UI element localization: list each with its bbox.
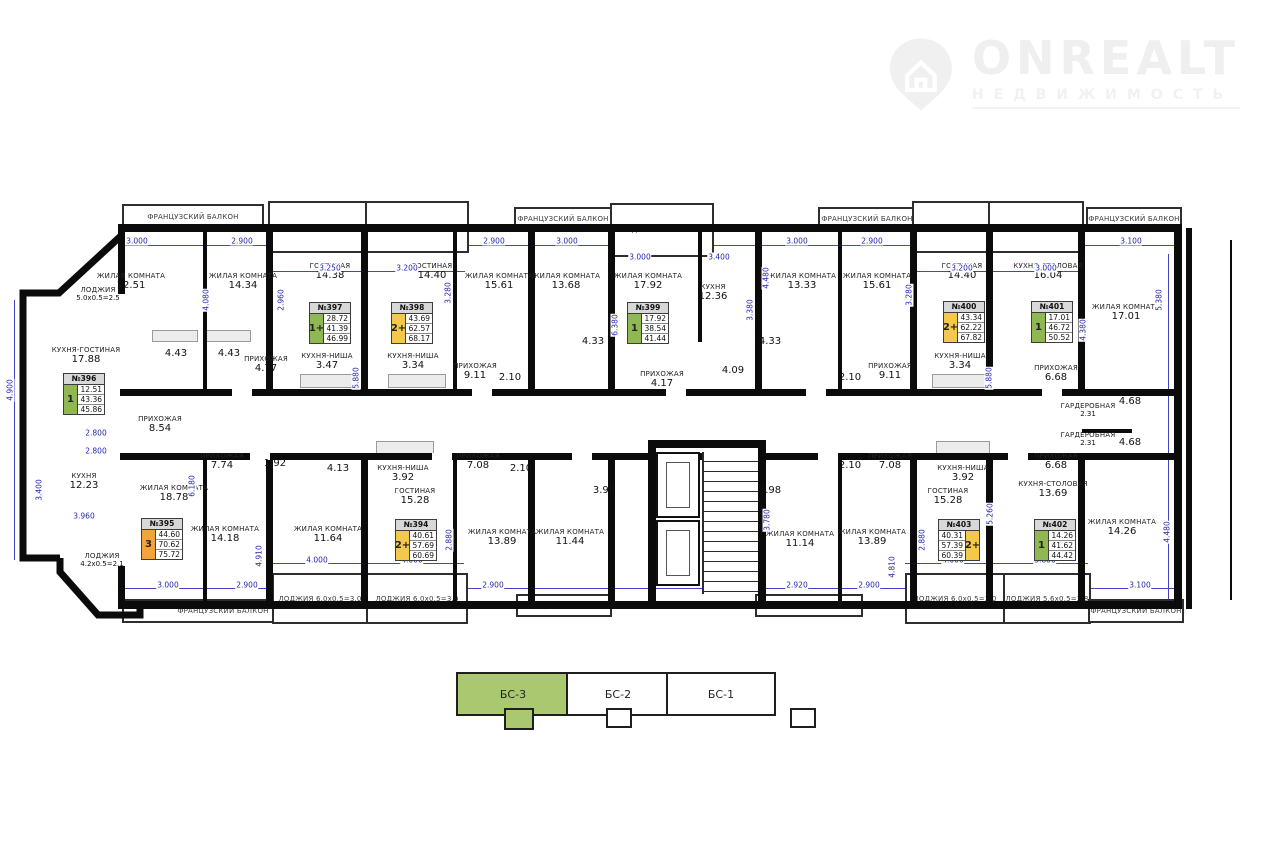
legend-section-entrance [606,708,632,728]
legend-section-entrance [790,708,816,728]
dimension-label: 2.920 [785,581,808,590]
elevator-shaft [656,520,700,586]
dimension-label: 2.900 [482,237,505,246]
room-label: 2.10 [499,372,521,383]
room-label: ЖИЛАЯ КОМНАТА18.78 [140,484,208,503]
apartment-number: №401 [1032,302,1072,313]
balcony-loggia-box: ЛОДЖИЯ 6.0x0.5=3.0 [272,573,368,624]
door-opening [806,389,826,396]
apartment-areas: 12.5143.3645.86 [78,385,104,414]
dimension-line [905,563,1088,564]
apartment-card-402[interactable]: №402114.2641.6244.42 [1034,519,1076,561]
room-label: КУХНЯ-НИША3.34 [934,352,985,371]
dimension-label: 3.250 [318,264,341,273]
dimension-label: 5.380 [1155,288,1164,311]
dimension-label: 2.900 [481,581,504,590]
room-label: КУХНЯ12.36 [699,283,728,302]
apartment-room-type-badge: 1 [64,385,78,414]
room-label: ПРИХОЖАЯ4.77 [244,355,288,374]
apartment-room-type-badge: 3 [142,530,156,559]
room-label: 4.09 [722,365,744,376]
room-label: ПРИХОЖАЯ7.08 [868,452,912,471]
room-label: 4.68 [1119,437,1141,448]
room-label: 4.33 [582,336,604,347]
room-label: ГОСТИНАЯ15.28 [395,487,436,506]
apartment-card-401[interactable]: №401117.0146.7250.52 [1031,301,1073,343]
room-label: КУХНЯ12.23 [70,472,99,491]
room-label: 4.43 [165,348,187,359]
door-opening [1008,453,1028,460]
dimension-label: 3.780 [763,508,772,531]
dimension-label: 4.380 [1079,318,1088,341]
staircase [702,452,758,594]
wall-segment [361,232,368,390]
room-label: ПРИХОЖАЯ9.11 [453,362,497,381]
wall-segment [910,460,917,602]
wall-segment [608,232,615,390]
room-label: КУХНЯ-НИША3.92 [937,464,988,483]
apartment-card-396[interactable]: №396112.5143.3645.86 [63,373,105,415]
apartment-room-type-badge: 1 [628,314,642,343]
apartment-room-type-badge: 2+ [396,531,410,560]
apartment-number: №396 [64,374,104,385]
room-label: ЖИЛАЯ КОМНАТА14.18 [191,525,259,544]
room-label: ЖИЛАЯ КОМНАТА13.89 [838,528,906,547]
wall-segment [608,460,615,602]
dimension-line [272,563,464,564]
dimension-label: 3.400 [707,253,730,262]
dimension-label: 4.080 [202,288,211,311]
apartment-areas: 17.9238.5441.44 [642,314,668,343]
room-label: ЖИЛАЯ КОМНАТА13.89 [468,528,536,547]
dimension-label: 5.260 [986,502,995,525]
apartment-number: №399 [628,303,668,314]
apartment-card-399[interactable]: №399117.9238.5441.44 [627,302,669,344]
apartment-areas: 43.3462.2267.82 [958,313,984,342]
dimension-label: 2.800 [84,447,107,456]
apartment-card-394[interactable]: №3942+40.6157.6960.69 [395,519,437,561]
room-label: ПРИХОЖАЯ6.68 [1034,452,1078,471]
wall-segment [266,460,273,602]
bathroom-kitchen-fixture [932,374,986,388]
room-label: КУХНЯ-ГОСТИНАЯ17.88 [52,346,121,365]
floorplan-page: ONREALT НЕДВИЖИМОСТЬ ФРАНЦУЗСКИЙ БАЛКОНЛ… [0,0,1280,854]
dimension-label: 3.000 [555,237,578,246]
door-opening [232,389,252,396]
room-label: ГАРДЕРОБНАЯ2.31 [1061,431,1116,447]
balcony-label: ФРАНЦУЗСКИЙ БАЛКОН [147,213,238,221]
balcony-label: ФРАНЦУЗСКИЙ БАЛКОН [517,215,608,223]
dimension-label: 3.960 [72,512,95,521]
dimension-label: 2.880 [445,528,454,551]
wall-segment [648,440,766,448]
room-label: ЖИЛАЯ КОМНАТА15.61 [843,272,911,291]
room-label: КУХНЯ-НИША3.47 [301,352,352,371]
dimension-label: 3.000 [1034,264,1057,273]
wall-segment [1230,240,1232,600]
dimension-label: 5.880 [352,366,361,389]
room-label: 2.10 [510,463,532,474]
room-label: ЛОДЖИЯ5.0x0.5=2.5 [76,286,119,302]
room-label: ЖИЛАЯ КОМНАТА14.26 [1088,518,1156,537]
bathroom-kitchen-fixture [152,330,198,342]
apartment-card-400[interactable]: №4002+43.3462.2267.82 [943,301,985,343]
dimension-label: 3.000 [125,237,148,246]
apartment-areas: 28.7241.3946.99 [324,314,350,343]
apartment-number: №394 [396,520,436,531]
dimension-label: 4.910 [255,544,264,567]
dimension-label: 3.280 [444,281,453,304]
room-label: КУХНЯ-НИША3.92 [377,464,428,483]
room-label: ЖИЛАЯ КОМНАТА11.14 [766,530,834,549]
room-label: ЖИЛАЯ КОМНАТА11.44 [536,528,604,547]
apartment-areas: 40.6157.6960.69 [410,531,436,560]
apartment-card-397[interactable]: №3971+28.7241.3946.99 [309,302,351,344]
room-label: ПРИХОЖАЯ8.54 [138,415,182,434]
apartment-card-403[interactable]: №4032+40.3157.3960.39 [938,519,980,561]
room-label: 4.68 [1119,396,1141,407]
floorplan-canvas: ФРАНЦУЗСКИЙ БАЛКОНЛОДЖИЯ 11.2x0.5=5.6ЛОД… [0,0,1280,854]
room-label: ЖИЛАЯ КОМНАТА13.33 [768,272,836,291]
room-label: ЛОДЖИЯ4.2x0.5=2.1 [80,552,123,568]
apartment-room-type-badge: 1 [1032,313,1046,342]
bay-window-outline [0,0,1280,854]
dimension-label: 5.880 [985,366,994,389]
room-label: ЖИЛАЯ КОМНАТА14.34 [209,272,277,291]
dimension-label: 2.900 [857,581,880,590]
dimension-label: 3.000 [156,581,179,590]
room-label: ПРИХОЖАЯ9.11 [868,362,912,381]
dimension-label: 3.000 [785,237,808,246]
dimension-label: 2.900 [235,581,258,590]
door-opening [818,453,838,460]
apartment-room-type-badge: 2+ [392,314,406,343]
apartment-number: №403 [939,520,979,531]
dimension-label: 2.960 [277,288,286,311]
apartment-number: №397 [310,303,350,314]
room-label: ГОСТИНАЯ15.28 [928,487,969,506]
balcony-label: ФРАНЦУЗСКИЙ БАЛКОН [1088,215,1179,223]
balcony-label: ФРАНЦУЗСКИЙ БАЛКОН [821,215,912,223]
room-label: ЖИЛАЯ КОМНАТА11.64 [294,525,362,544]
dimension-label: 2.880 [918,528,927,551]
apartment-card-398[interactable]: №3982+43.6962.5768.17 [391,302,433,344]
wall-segment [1186,228,1192,609]
wall-segment [118,566,125,609]
dimension-label: 3.200 [395,264,418,273]
room-label: 4.13 [327,463,349,474]
wall-segment [528,232,535,390]
room-label: ПРИХОЖАЯ4.17 [640,370,684,389]
room-label: 3.98 [759,485,781,496]
door-opening [666,389,686,396]
wall-segment [120,389,1176,396]
room-label: ПРИХОЖАЯ7.08 [456,452,500,471]
apartment-number: №400 [944,302,984,313]
room-label: 4.33 [759,336,781,347]
room-label: 2.10 [839,460,861,471]
bathroom-kitchen-fixture [300,374,358,388]
apartment-room-type-badge: 2+ [965,531,979,560]
dimension-label: 2.800 [84,429,107,438]
apartment-areas: 17.0146.7250.52 [1046,313,1072,342]
dimension-label: 4.810 [888,555,897,578]
elevator-shaft [656,452,700,518]
dimension-line [14,300,15,560]
apartment-number: №402 [1035,520,1075,531]
wall-segment [120,601,1182,609]
dimension-label: 2.900 [860,237,883,246]
apartment-room-type-badge: 1+ [310,314,324,343]
apartment-card-395[interactable]: №395344.6070.6275.72 [141,518,183,560]
apartment-areas: 14.2641.6244.42 [1049,531,1075,560]
room-label: ЖИЛАЯ КОМНАТА17.92 [614,272,682,291]
wall-segment [838,232,842,390]
wall-segment [1174,224,1182,609]
dimension-label: 3.000 [628,253,651,262]
wall-segment [755,232,762,390]
wall-segment [453,460,457,602]
apartment-number: №395 [142,519,182,530]
apartment-room-type-badge: 1 [1035,531,1049,560]
bathroom-kitchen-fixture [388,374,446,388]
dimension-label: 3.100 [1128,581,1151,590]
room-label: 2.10 [839,372,861,383]
room-label: КУХНЯ-СТОЛОВАЯ13.69 [1018,480,1087,499]
room-label: ПРИХОЖАЯ6.68 [1034,364,1078,383]
apartment-areas: 40.3157.3960.39 [939,531,965,560]
dimension-label: 6.180 [188,474,197,497]
room-label: ЖИЛАЯ КОМНАТА13.68 [532,272,600,291]
wall-segment [648,440,656,602]
dimension-label: 4.480 [762,266,771,289]
room-label: 3.98 [593,485,615,496]
door-opening [472,389,492,396]
room-label: ЖИЛАЯ КОМНАТА17.01 [1092,303,1160,322]
room-label: 4.43 [218,348,240,359]
room-label: ЖИЛАЯ КОМНАТА15.61 [465,272,533,291]
apartment-areas: 43.6962.5768.17 [406,314,432,343]
legend-section-entrance [504,708,534,730]
dimension-label: 4.000 [305,556,328,565]
apartment-number: №398 [392,303,432,314]
room-label: 1.92 [264,458,286,469]
room-label: ГАРДЕРОБНАЯ2.31 [1061,402,1116,418]
apartment-areas: 44.6070.6275.72 [156,530,182,559]
dimension-line [1168,254,1169,602]
apartment-room-type-badge: 2+ [944,313,958,342]
dimension-label: 3.400 [35,478,44,501]
dimension-label: 3.380 [746,298,755,321]
wall-segment [1078,232,1085,390]
legend-section-БС-1[interactable]: БС-1 [666,672,776,716]
dimension-label: 6.380 [611,313,620,336]
dimension-label: 4.480 [1163,520,1172,543]
door-opening [572,453,592,460]
door-opening [432,453,452,460]
room-label: ПРИХОЖАЯ7.74 [200,452,244,471]
dimension-label: 4.900 [6,378,15,401]
door-opening [1042,389,1062,396]
dimension-label: 2.900 [230,237,253,246]
bathroom-kitchen-fixture [205,330,251,342]
room-label: КУХНЯ-НИША3.34 [387,352,438,371]
dimension-label: 3.200 [950,264,973,273]
dimension-label: 3.280 [905,283,914,306]
dimension-label: 3.100 [1119,237,1142,246]
wall-segment [120,224,1182,232]
